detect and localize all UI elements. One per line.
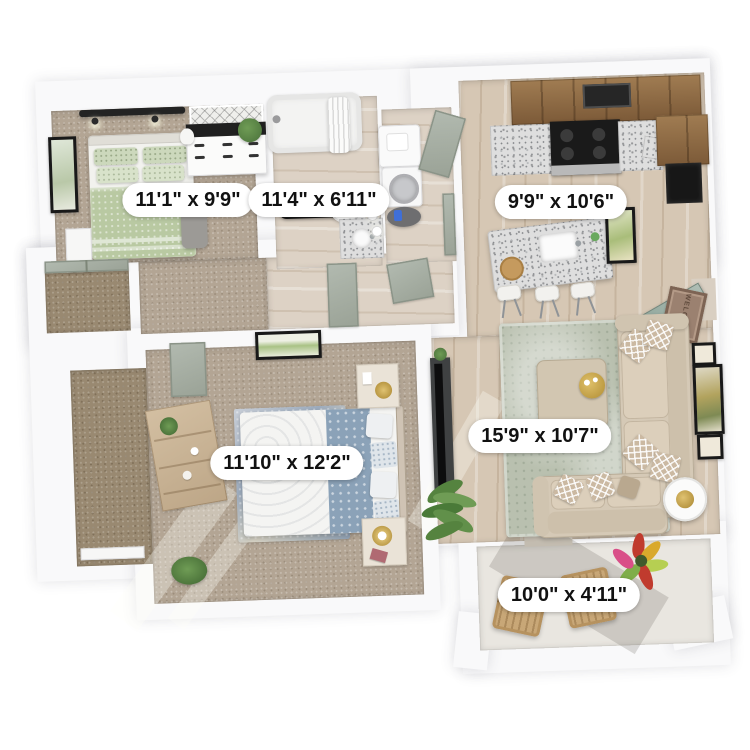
stool-leg xyxy=(540,301,544,319)
pillow xyxy=(370,440,399,469)
bar-stool xyxy=(534,285,561,321)
gallery-frame-large xyxy=(692,364,724,435)
pantry-cabinet xyxy=(656,114,710,166)
nightstand-top xyxy=(356,363,400,408)
drawer-line xyxy=(159,458,216,470)
fridge-niche xyxy=(665,162,702,203)
gold-dish xyxy=(375,381,393,399)
burner xyxy=(592,128,605,141)
dresser-plant xyxy=(158,416,179,437)
detergent-bottle xyxy=(394,210,402,221)
palm-plant xyxy=(418,475,478,549)
walkin-closet-floor xyxy=(70,368,153,567)
stove xyxy=(550,119,622,175)
washer xyxy=(378,124,421,167)
lamp-gold-base xyxy=(676,490,695,509)
room-dimension-label-bedroom2: 11'10" x 12'2" xyxy=(210,446,363,480)
drawer-pull xyxy=(223,155,233,158)
burner xyxy=(560,129,573,142)
bar-stool xyxy=(570,281,598,318)
stool-seat xyxy=(496,284,522,302)
stool-leg xyxy=(514,299,522,317)
room-dimension-label-balcony: 10'0" x 4'11" xyxy=(498,578,640,612)
room-dimension-label-bathroom: 11'4" x 6'11" xyxy=(248,183,389,217)
pillow xyxy=(93,147,138,166)
bench-throw xyxy=(181,212,208,249)
hallway-carpet xyxy=(138,258,268,334)
door-hall-bath xyxy=(386,257,434,304)
floorplan-render: WELCOME xyxy=(0,0,750,750)
drawer-pull xyxy=(222,143,232,146)
floorplan-image: WELCOME xyxy=(0,0,750,750)
island-faucet xyxy=(575,240,582,247)
stool-leg xyxy=(587,296,596,313)
gallery-frame-small xyxy=(692,342,717,366)
stool-leg xyxy=(576,298,580,316)
pillow xyxy=(142,165,185,182)
nightstand-bottom xyxy=(362,517,408,567)
drawer-pull xyxy=(248,142,258,145)
drawer-line xyxy=(163,483,220,495)
pillow xyxy=(370,471,397,498)
tray-item xyxy=(593,377,598,382)
closet-shelf xyxy=(80,546,144,560)
vanity-sink xyxy=(351,228,372,249)
pillow xyxy=(142,145,187,164)
stool-seat xyxy=(534,285,559,302)
bedroom1-closet-floor xyxy=(44,263,130,334)
green-cup xyxy=(590,232,600,242)
drawer-pull xyxy=(195,156,205,159)
stool-leg xyxy=(502,300,506,318)
pink-book xyxy=(370,548,388,563)
wall-cabinet-bedroom2 xyxy=(169,342,207,397)
burner xyxy=(561,147,574,160)
drawer-pull xyxy=(249,154,259,157)
counter-left xyxy=(490,124,554,176)
dryer-door xyxy=(389,173,420,204)
washer-lid xyxy=(386,133,409,152)
pillow xyxy=(365,413,393,439)
trinket xyxy=(182,470,192,480)
gold-dish xyxy=(372,526,393,547)
tray-item xyxy=(584,380,590,386)
door-bedroom2 xyxy=(327,263,359,328)
room-dimension-label-living: 15'9" x 10'7" xyxy=(468,419,611,453)
room-dimension-label-bedroom1: 11'1" x 9'9" xyxy=(122,183,253,217)
door-panel-hall xyxy=(442,193,456,255)
bar-stool xyxy=(496,284,524,321)
pillow xyxy=(96,166,139,183)
bathroom-vanity xyxy=(339,218,384,260)
gallery-frame-small xyxy=(697,434,724,460)
stool-leg xyxy=(552,299,560,317)
room-dimension-label-kitchen: 9'9" x 10'6" xyxy=(495,185,627,219)
island-sink xyxy=(538,231,579,263)
trinket xyxy=(190,446,199,455)
candle xyxy=(362,372,371,384)
wall-art-bedroom2 xyxy=(255,330,322,360)
vase xyxy=(180,128,195,144)
wood-tray xyxy=(498,255,525,282)
shower-curtain xyxy=(327,97,351,154)
door-divider xyxy=(85,260,87,272)
stool-seat xyxy=(570,281,596,299)
drawer-pull xyxy=(194,144,204,147)
wall-art-bedroom1 xyxy=(48,136,79,213)
burner xyxy=(593,146,606,159)
microwave xyxy=(583,83,632,109)
sofa-back xyxy=(547,508,666,534)
